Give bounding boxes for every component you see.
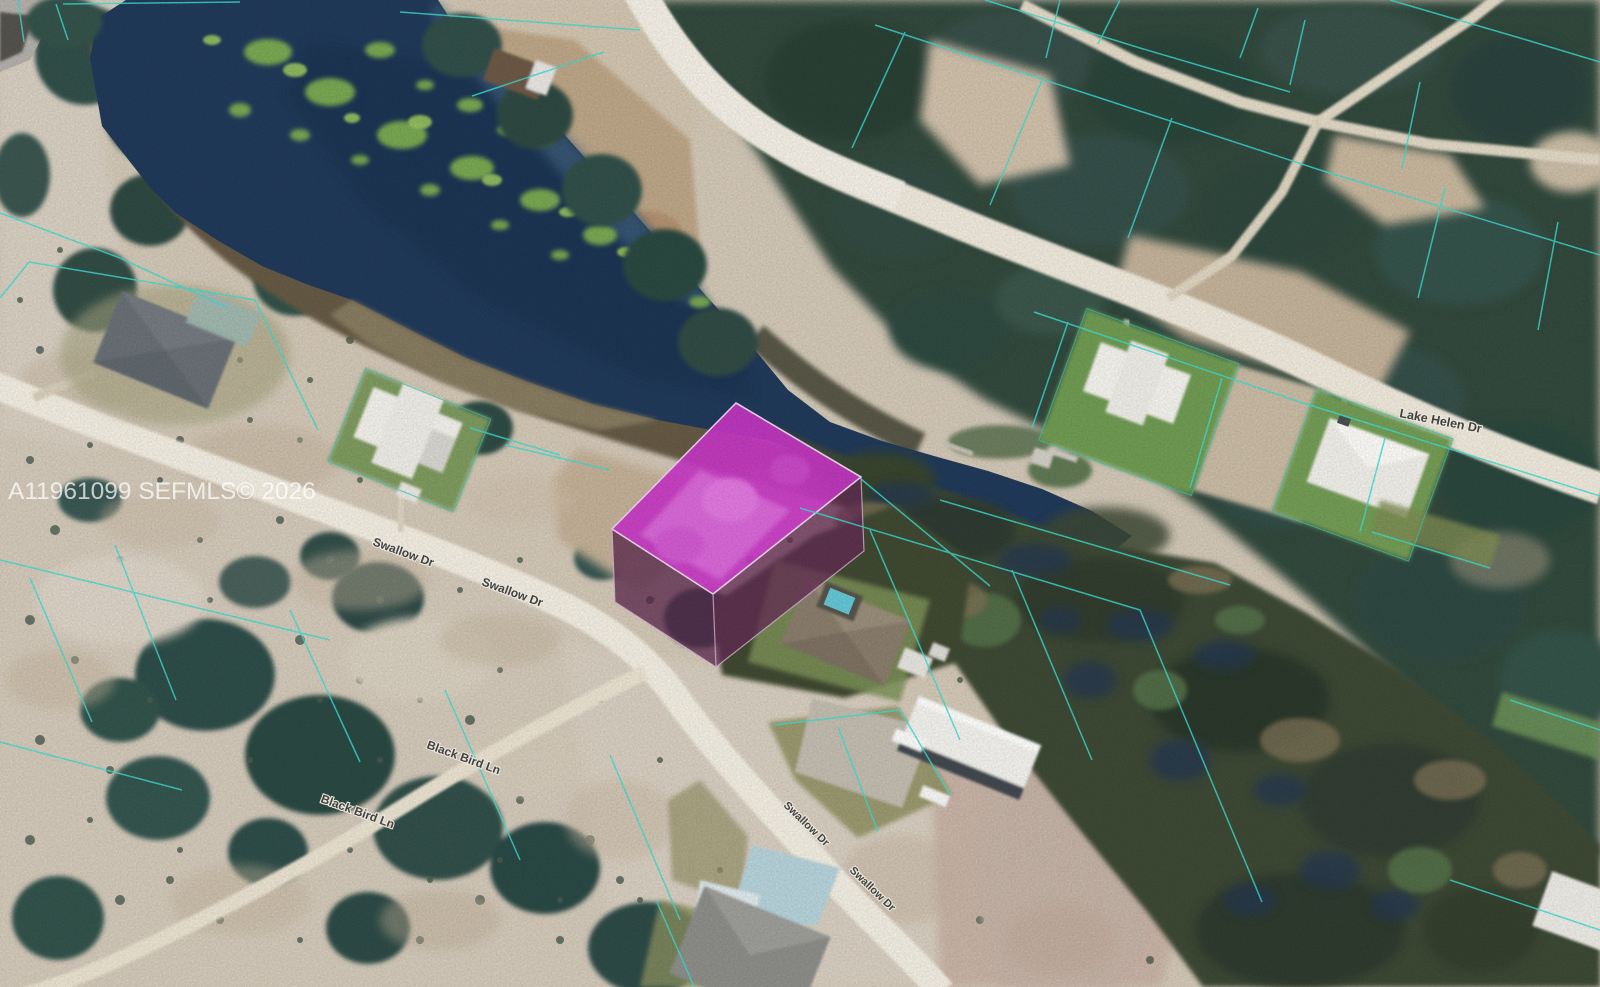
svg-text:A11961099 SEFMLS© 2026: A11961099 SEFMLS© 2026 — [8, 478, 316, 505]
